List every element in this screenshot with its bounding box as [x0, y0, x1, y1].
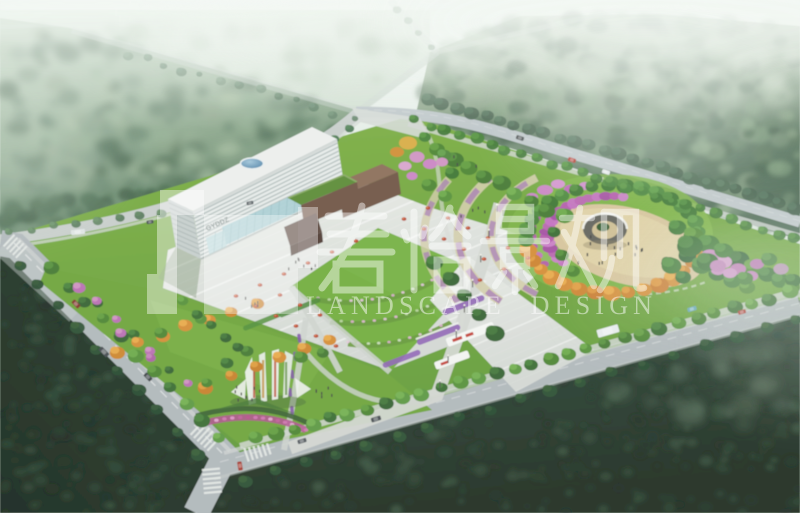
svg-text:LANDSCAPE DESIGN: LANDSCAPE DESIGN [306, 291, 657, 320]
